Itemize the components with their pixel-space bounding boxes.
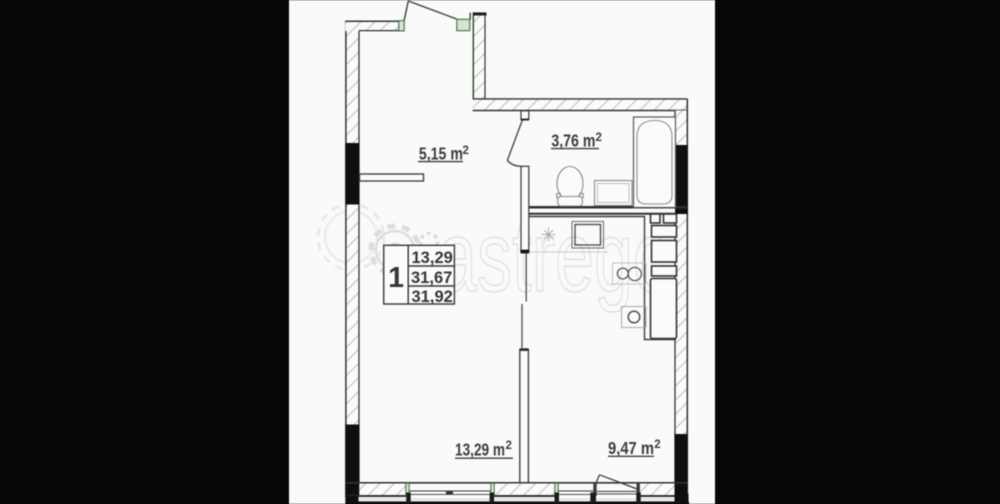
svg-text:2: 2 <box>654 439 660 451</box>
svg-text:2: 2 <box>506 440 512 452</box>
svg-text:13,29 m: 13,29 m <box>455 440 505 460</box>
svg-text:5,15 m: 5,15 m <box>419 144 463 164</box>
svg-text:3,76 m: 3,76 m <box>551 130 595 150</box>
svg-text:9,47 m: 9,47 m <box>608 438 654 458</box>
svg-text:2: 2 <box>596 132 602 144</box>
svg-text:astrego: astrego <box>438 201 672 313</box>
svg-text:31,92: 31,92 <box>412 287 453 306</box>
svg-text:31,67: 31,67 <box>411 268 452 287</box>
svg-text:13,29: 13,29 <box>412 248 453 267</box>
svg-text:2: 2 <box>463 145 469 157</box>
svg-text:1: 1 <box>388 262 404 294</box>
